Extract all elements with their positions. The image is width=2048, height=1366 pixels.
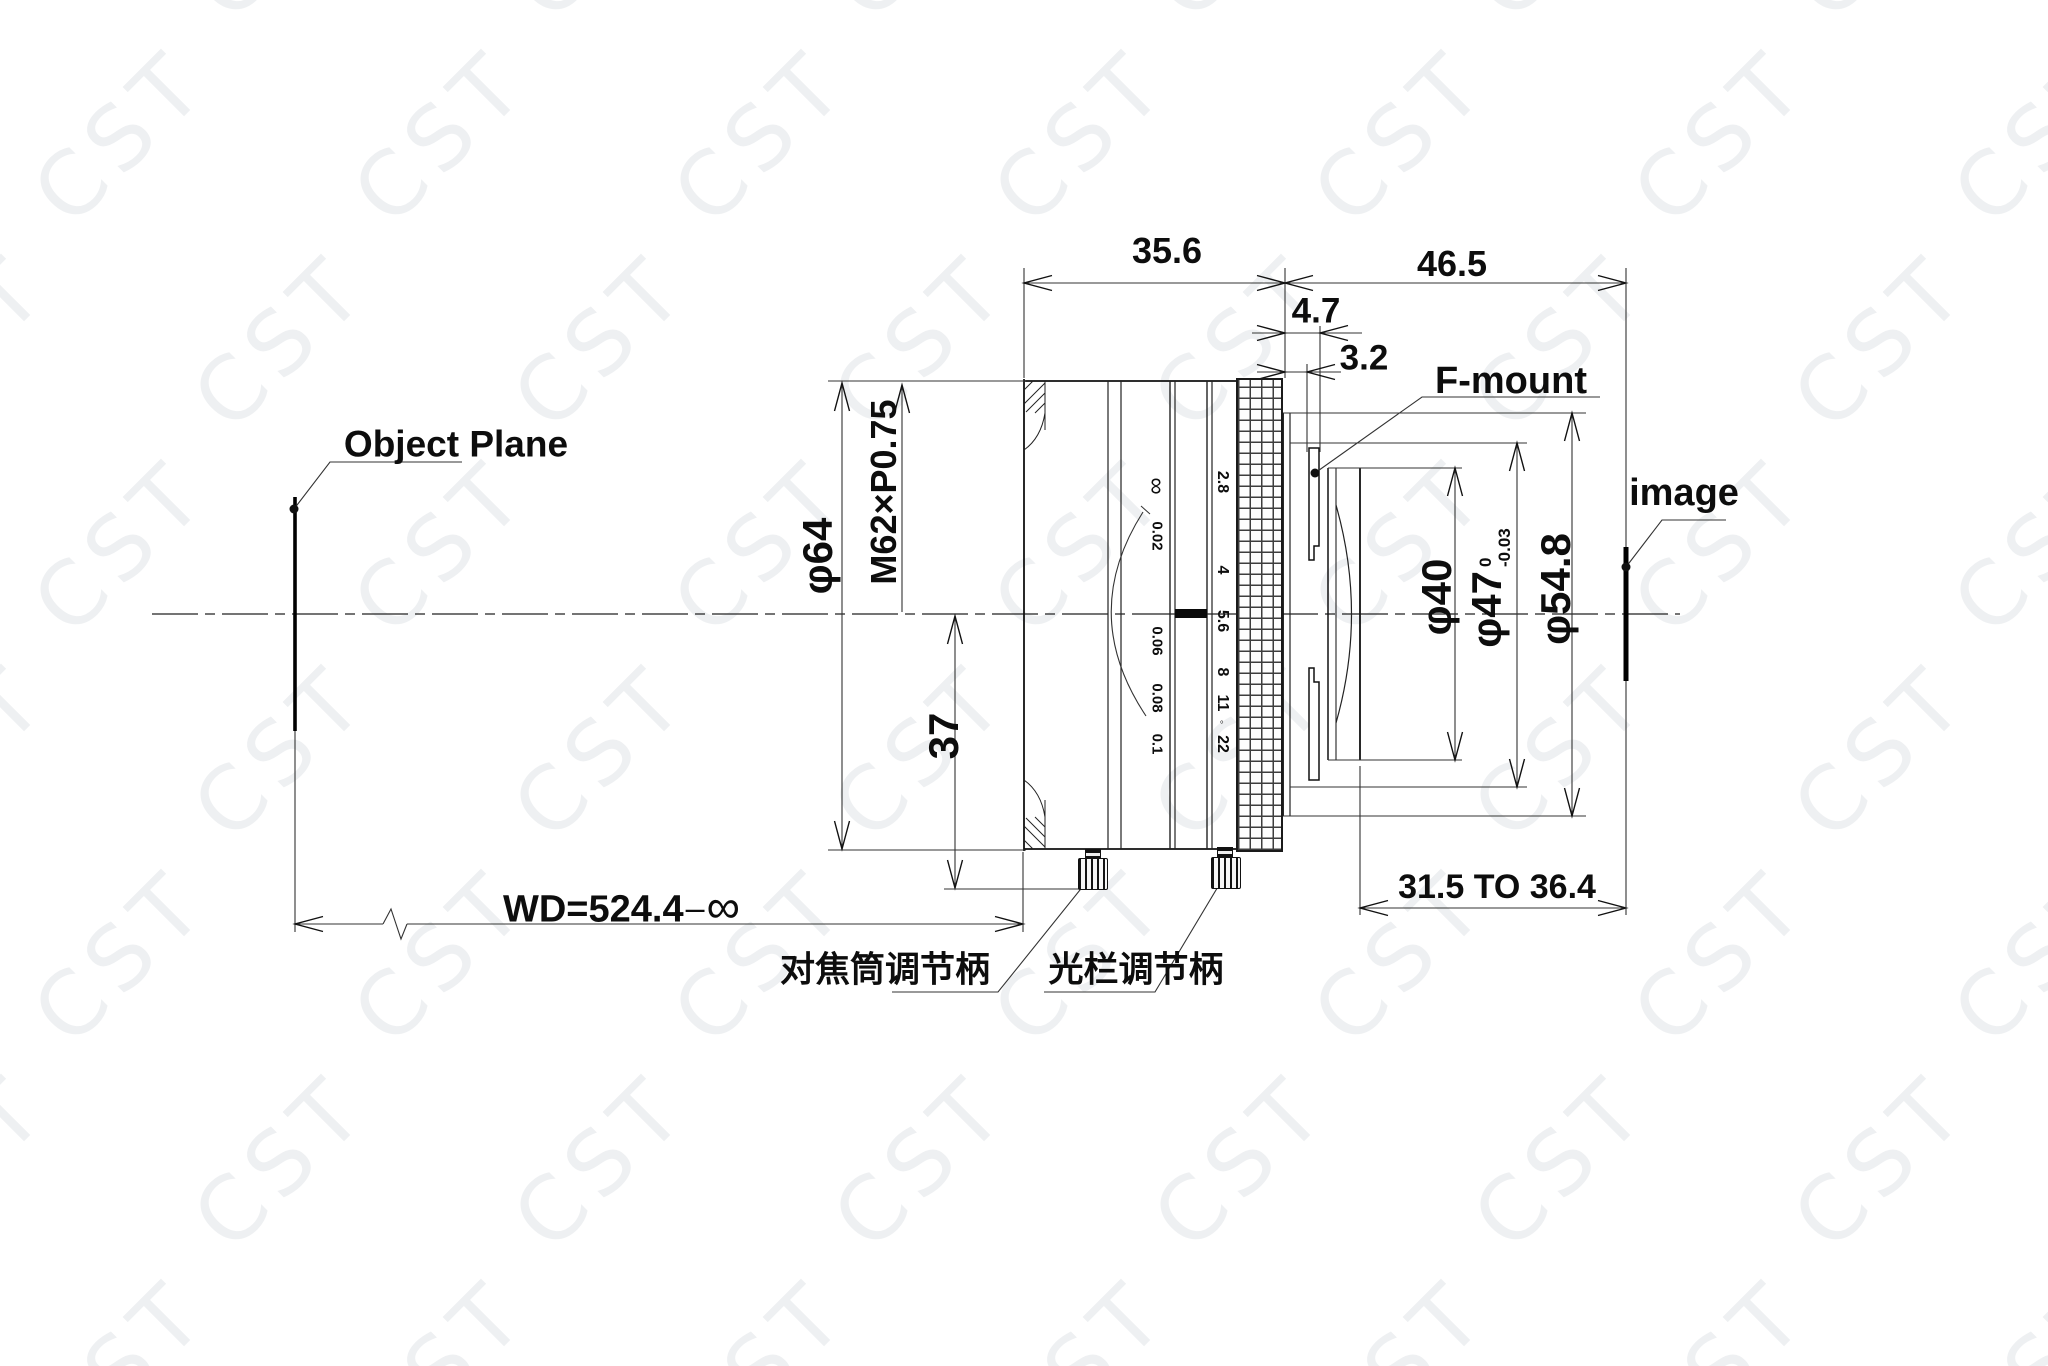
focus-scale-008: 0.08	[1150, 683, 1165, 712]
fstop-2_8: 2.8	[1214, 471, 1230, 493]
f-mount-section	[1283, 413, 1586, 915]
fstop-22: 22	[1214, 735, 1230, 753]
aperture-knurled-ring	[1236, 378, 1283, 852]
dim-mount-step: 4.7	[1292, 294, 1341, 329]
dim-knob-radius: 37	[923, 713, 965, 760]
tolerance-lower: -0.03	[1496, 528, 1515, 567]
focus-knob-neck	[1085, 849, 1101, 858]
drawing-canvas	[0, 0, 2048, 1366]
dim-pilot-diameter: φ470-0.03	[1466, 528, 1514, 648]
wd-dash: –	[686, 890, 705, 928]
focus-knob	[1078, 858, 1108, 890]
image-plane-mark	[1622, 268, 1727, 915]
dim-filter-thread: M62×P0.75	[866, 399, 902, 584]
infinity-symbol: ∞	[707, 880, 741, 933]
fstop-4: 4	[1214, 566, 1230, 575]
focus-scale-01: 0.1	[1150, 734, 1165, 755]
dim-rear-to-image: 31.5 TO 36.4	[1398, 870, 1596, 904]
pilot-diameter-value: φ47	[1463, 571, 1510, 648]
dim-flange-diameter: φ54.8	[1535, 533, 1577, 645]
right-dimensions	[1360, 413, 1626, 916]
iris-knob	[1211, 857, 1241, 889]
object-plane-label: Object Plane	[344, 426, 568, 463]
fstop-5_6: 5.6	[1214, 610, 1230, 632]
lens-mechanical-drawing: CSTCSTCSTCSTCSTCSTCSTCSTCSTCSTCSTCSTCSTC…	[0, 0, 2048, 1366]
f-mount-label: F-mount	[1435, 362, 1587, 400]
front-barrel-outline	[1024, 379, 1238, 851]
fstop-8: 8	[1214, 668, 1230, 677]
focus-scale-002: 0.02	[1150, 521, 1165, 550]
object-plane-mark	[290, 462, 463, 932]
iris-knob-neck	[1217, 847, 1233, 857]
dim-flange-back: 46.5	[1417, 246, 1487, 282]
image-label: image	[1629, 474, 1739, 512]
tolerance-upper: 0	[1477, 528, 1496, 567]
dim-front-diameter: φ64	[797, 518, 839, 595]
iris-handle-label: 光栏调节柄	[1048, 953, 1223, 988]
pilot-tolerance: 0-0.03	[1477, 528, 1514, 567]
dim-rear-barrel-diameter: φ40	[1416, 559, 1458, 636]
dim-working-distance: WD=524.4–∞	[503, 882, 740, 929]
fstop-11: 11	[1214, 695, 1230, 712]
focus-scale-infinity: ∞	[1144, 477, 1168, 494]
focus-handle-label: 对焦筒调节柄	[780, 953, 990, 988]
dim-front-length: 35.6	[1132, 233, 1202, 269]
focus-scale-006: 0.06	[1150, 626, 1165, 655]
wd-value: WD=524.4	[503, 889, 684, 931]
fstop-16-dot: ◦	[1216, 720, 1228, 724]
dim-bayonet-offset: 3.2	[1340, 341, 1389, 376]
aperture-index-mark	[1175, 609, 1207, 618]
